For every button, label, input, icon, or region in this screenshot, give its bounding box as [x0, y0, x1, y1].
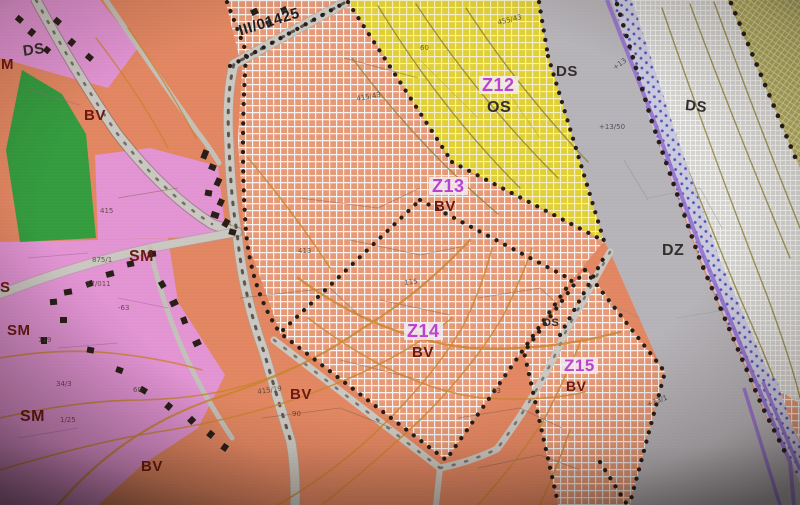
label-bv-3: BV — [84, 108, 106, 123]
label-os-5: OS — [487, 100, 511, 116]
label-ds-1: DS — [22, 41, 46, 59]
label-bv-9: BV — [434, 199, 456, 214]
label-s-12: S — [0, 280, 11, 295]
label-ds-6: DS — [556, 64, 578, 79]
label-sm-13: SM — [7, 323, 31, 338]
parcel-number-14: 115 — [404, 279, 418, 287]
label-z14-14: Z14 — [404, 322, 443, 340]
parcel-number-13: 53 — [492, 388, 501, 395]
label-ds-7: DS — [684, 98, 707, 115]
parcel-number-7: -63 — [118, 305, 129, 312]
parcel-number-12: 60 — [133, 387, 142, 394]
label-dz-10: DZ — [662, 243, 684, 259]
parcel-number-18: 60 — [420, 45, 429, 52]
label-z12-4: Z12 — [479, 76, 518, 94]
label-m-2: M — [1, 57, 14, 72]
label-iii01425-0: III/01425 — [237, 6, 302, 39]
parcel-number-3: 415 — [100, 208, 113, 215]
parcel-number-5: 57/011 — [86, 281, 111, 288]
parcel-number-11: 1/25 — [60, 417, 76, 424]
map-labels: III/01425DSMBVZ12OSDSDSZ13BVDZSMSSMZ14BV… — [0, 0, 800, 505]
parcel-number-6: 119 — [38, 337, 51, 344]
label-z15-17: Z15 — [561, 357, 598, 374]
map-photo: 455/43+13/50+13415875/157/011119-63415/1… — [0, 0, 800, 505]
parcel-number-4: 875/1 — [92, 257, 112, 264]
label-sm-11: SM — [129, 249, 154, 265]
label-bv-20: BV — [290, 387, 312, 402]
label-sm-19: SM — [20, 409, 45, 425]
parcel-number-1: +13/50 — [599, 124, 625, 131]
parcel-number-15: 413 — [298, 248, 311, 255]
label-ds-16: DS — [543, 318, 559, 329]
label-bv-18: BV — [566, 379, 586, 393]
parcel-number-9: 90 — [292, 411, 301, 418]
zoning-map[interactable]: 455/43+13/50+13415875/157/011119-63415/1… — [0, 0, 800, 505]
parcel-number-10: 34/3 — [56, 381, 72, 388]
label-bv-15: BV — [412, 345, 434, 360]
label-z13-8: Z13 — [429, 177, 468, 195]
label-bv-21: BV — [141, 459, 163, 474]
